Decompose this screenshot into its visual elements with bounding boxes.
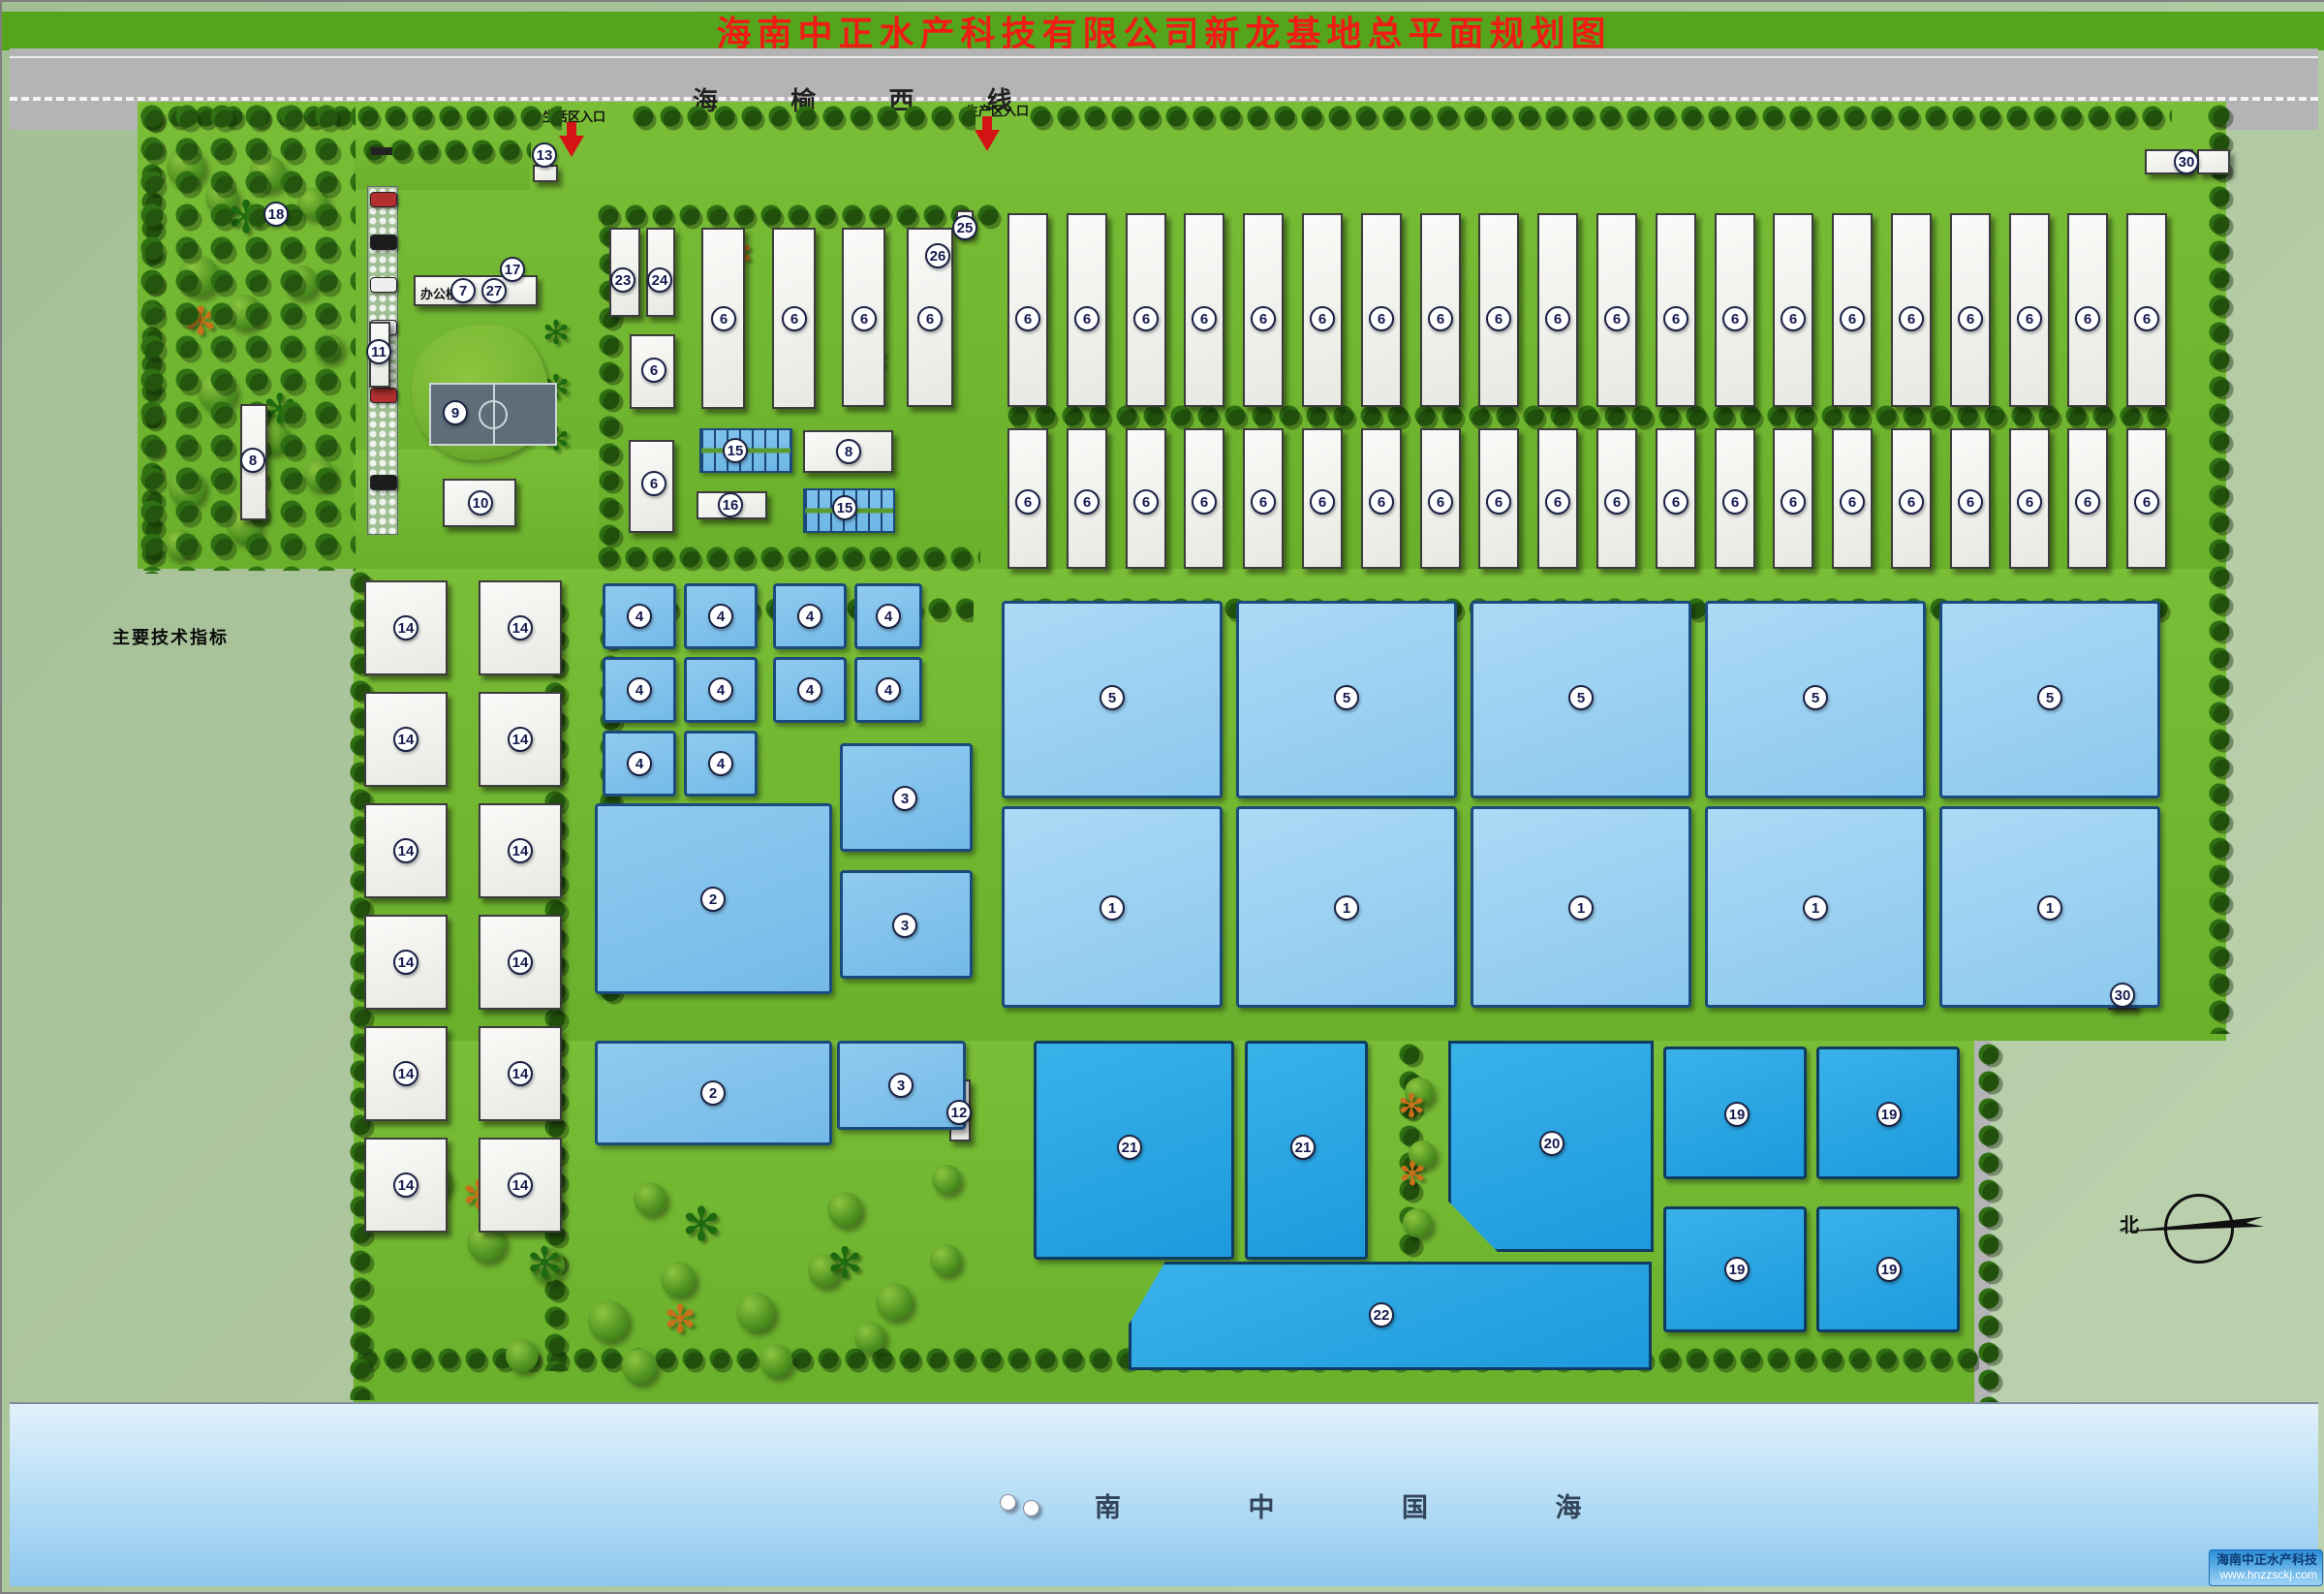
number-marker: 6: [1722, 306, 1748, 331]
number-marker: 15: [723, 438, 748, 463]
tree-row: [1027, 102, 2172, 131]
palm-tree-icon: ✻: [1399, 1155, 1427, 1194]
number-marker: 6: [1251, 489, 1276, 515]
palm-tree-icon: ✻: [1398, 1087, 1426, 1126]
number-marker: 26: [925, 243, 950, 268]
number-marker: 6: [1840, 489, 1865, 515]
number-marker: 6: [1369, 306, 1394, 331]
number-marker: 6: [1428, 306, 1453, 331]
number-marker: 4: [797, 604, 822, 629]
court-center-circle: [479, 400, 508, 429]
car-icon: [370, 192, 397, 207]
number-marker: 5: [1803, 685, 1828, 710]
number-marker: 8: [240, 448, 265, 473]
car-icon: [370, 475, 397, 490]
number-marker: 25: [952, 215, 977, 240]
number-marker: 19: [1876, 1257, 1902, 1282]
title-bar: 海南中正水产科技有限公司新龙基地总平面规划图: [2, 12, 2324, 50]
number-marker: 4: [708, 677, 733, 703]
technical-indicators-panel: 主要技术指标: [77, 624, 349, 665]
road-center-dashed-line: [10, 97, 2318, 101]
watermark-website: www.hnzzsckj.com: [2210, 1568, 2317, 1581]
number-marker: 7: [450, 278, 476, 303]
number-marker: 6: [1781, 489, 1806, 515]
watermark-badge: 海南中正水产科技 www.hnzzsckj.com: [2209, 1549, 2323, 1586]
number-marker: 3: [888, 1073, 914, 1098]
number-marker: 6: [2017, 489, 2042, 515]
gate-barrier: [371, 147, 392, 155]
number-marker: 6: [1545, 306, 1570, 331]
number-marker: 6: [2134, 489, 2159, 515]
number-marker: 6: [641, 471, 666, 496]
tree-row: [630, 102, 976, 131]
site-plan-canvas: 海南中正水产科技有限公司新龙基地总平面规划图 海 榆 西 线 生活区入口 生产区…: [0, 0, 2324, 1594]
number-marker: 6: [917, 306, 943, 331]
number-marker: 6: [1310, 306, 1335, 331]
number-marker: 6: [2075, 306, 2100, 331]
number-marker: 6: [2134, 306, 2159, 331]
tree-icon: [622, 1349, 657, 1384]
number-marker: 6: [2075, 489, 2100, 515]
sea-area: 南 中 国 海: [10, 1402, 2318, 1586]
palm-tree-icon: ✻: [682, 1198, 721, 1252]
number-marker: 6: [852, 306, 877, 331]
number-marker: 22: [1369, 1302, 1394, 1328]
number-marker: 5: [1100, 685, 1125, 710]
tree-icon: [506, 1339, 539, 1372]
number-marker: 15: [832, 495, 857, 520]
number-marker: 6: [1428, 489, 1453, 515]
number-marker: 20: [1539, 1131, 1565, 1156]
number-marker: 6: [1192, 306, 1217, 331]
number-marker: 1: [1568, 895, 1594, 921]
road-edge-line: [10, 56, 2318, 58]
number-marker: 6: [1192, 489, 1217, 515]
number-marker: 1: [1100, 895, 1125, 921]
number-marker: 14: [508, 615, 533, 641]
seawater-filter-well: [1023, 1500, 1039, 1516]
indicators-heading: 主要技术指标: [112, 624, 349, 649]
number-marker: 6: [1015, 306, 1040, 331]
number-marker: 6: [1133, 489, 1159, 515]
number-marker: 2: [700, 1080, 726, 1106]
tree-column: [1974, 1041, 2003, 1402]
number-marker: 14: [508, 838, 533, 863]
palm-tree-icon: ✻: [664, 1297, 697, 1342]
number-marker: 24: [647, 267, 672, 293]
number-marker: 12: [946, 1100, 972, 1125]
number-marker: 5: [2037, 685, 2062, 710]
number-marker: 2: [700, 887, 726, 912]
number-marker: 21: [1290, 1135, 1316, 1160]
number-marker: 14: [393, 1172, 418, 1198]
number-marker: 6: [1015, 489, 1040, 515]
entrance-prod-arrow-icon: [975, 130, 1000, 151]
number-marker: 6: [1486, 489, 1511, 515]
number-marker: 6: [1958, 306, 1983, 331]
number-marker: 6: [1722, 489, 1748, 515]
number-marker: 1: [1803, 895, 1828, 921]
number-marker: 6: [1958, 489, 1983, 515]
number-marker: 4: [708, 604, 733, 629]
number-marker: 14: [508, 1061, 533, 1086]
number-marker: 19: [1724, 1257, 1750, 1282]
number-marker: 17: [500, 257, 525, 282]
number-marker: 19: [1876, 1102, 1902, 1127]
number-marker: 6: [1251, 306, 1276, 331]
number-marker: 6: [1310, 489, 1335, 515]
number-marker: 3: [892, 913, 917, 938]
number-marker: 4: [627, 677, 652, 703]
tree-row: [1005, 401, 2172, 430]
number-marker: 4: [797, 677, 822, 703]
number-marker: 5: [1568, 685, 1594, 710]
compass-north-label: 北: [2120, 1209, 2139, 1237]
number-marker: 30: [2174, 149, 2199, 174]
entrance-prod-arrow-stem: [982, 116, 992, 130]
number-marker: 9: [443, 400, 468, 425]
entrance-life-arrow-icon: [559, 136, 584, 157]
tree-icon: [588, 1300, 629, 1341]
number-marker: 6: [1840, 306, 1865, 331]
building: [2197, 149, 2230, 174]
number-marker: 6: [1074, 306, 1100, 331]
number-marker: 6: [1074, 489, 1100, 515]
tree-icon: [661, 1262, 696, 1297]
number-marker: 14: [393, 615, 418, 641]
number-marker: 4: [708, 751, 733, 776]
tree-icon: [827, 1192, 862, 1227]
number-marker: 3: [892, 786, 917, 811]
number-marker: 14: [393, 1061, 418, 1086]
number-marker: 10: [468, 490, 493, 516]
car-icon: [370, 388, 397, 403]
number-marker: 1: [2037, 895, 2062, 921]
number-marker: 23: [610, 267, 635, 293]
number-marker: 6: [1133, 306, 1159, 331]
palm-tree-icon: ✻: [527, 1239, 563, 1289]
tree-row: [595, 543, 980, 572]
tree-icon: [736, 1293, 775, 1331]
number-marker: 14: [508, 950, 533, 975]
number-marker: 6: [2017, 306, 2042, 331]
number-marker: 14: [393, 950, 418, 975]
number-marker: 6: [1604, 306, 1629, 331]
tree-icon: [930, 1244, 961, 1275]
number-marker: 30: [2110, 983, 2135, 1008]
number-marker: 4: [627, 604, 652, 629]
number-marker: 6: [1663, 306, 1689, 331]
number-marker: 16: [718, 492, 743, 517]
number-marker: 4: [876, 604, 901, 629]
number-marker: 6: [1369, 489, 1394, 515]
tree-icon: [876, 1283, 913, 1320]
entrance-life-arrow-stem: [567, 122, 576, 136]
number-marker: 6: [782, 306, 807, 331]
compass-circle-icon: [2164, 1194, 2234, 1264]
watermark-company: 海南中正水产科技: [2210, 1552, 2317, 1568]
tree-row: [595, 201, 1002, 230]
number-marker: 14: [393, 727, 418, 752]
car-icon: [370, 234, 397, 250]
palm-tree-icon: ✻: [827, 1239, 863, 1289]
number-marker: 1: [1334, 895, 1359, 921]
number-marker: 6: [711, 306, 736, 331]
number-marker: 6: [1899, 306, 1924, 331]
car-icon: [370, 277, 397, 293]
palm-tree-icon: ✻: [542, 314, 571, 353]
number-marker: 6: [1604, 489, 1629, 515]
seawater-filter-well: [1000, 1494, 1016, 1511]
number-marker: 6: [1663, 489, 1689, 515]
tree-icon: [759, 1344, 792, 1377]
number-marker: 4: [627, 751, 652, 776]
number-marker: 4: [876, 677, 901, 703]
sea-label: 南 中 国 海: [1095, 1486, 1642, 1524]
number-marker: 6: [1899, 489, 1924, 515]
tree-column: [2205, 102, 2234, 1034]
number-marker: 8: [836, 439, 861, 464]
number-marker: 6: [1781, 306, 1806, 331]
number-marker: 14: [393, 838, 418, 863]
tree-icon: [1403, 1208, 1432, 1237]
number-marker: 14: [508, 1172, 533, 1198]
number-marker: 19: [1724, 1102, 1750, 1127]
number-marker: 18: [263, 202, 289, 227]
tree-icon: [854, 1322, 885, 1353]
number-marker: 27: [481, 278, 507, 303]
number-marker: 13: [532, 142, 557, 168]
tree-icon: [932, 1165, 961, 1194]
number-marker: 11: [366, 339, 391, 364]
number-marker: 14: [508, 727, 533, 752]
number-marker: 6: [1486, 306, 1511, 331]
tree-icon: [634, 1182, 666, 1215]
number-marker: 6: [641, 358, 666, 383]
number-marker: 21: [1117, 1135, 1142, 1160]
number-marker: 5: [1334, 685, 1359, 710]
number-marker: 6: [1545, 489, 1570, 515]
